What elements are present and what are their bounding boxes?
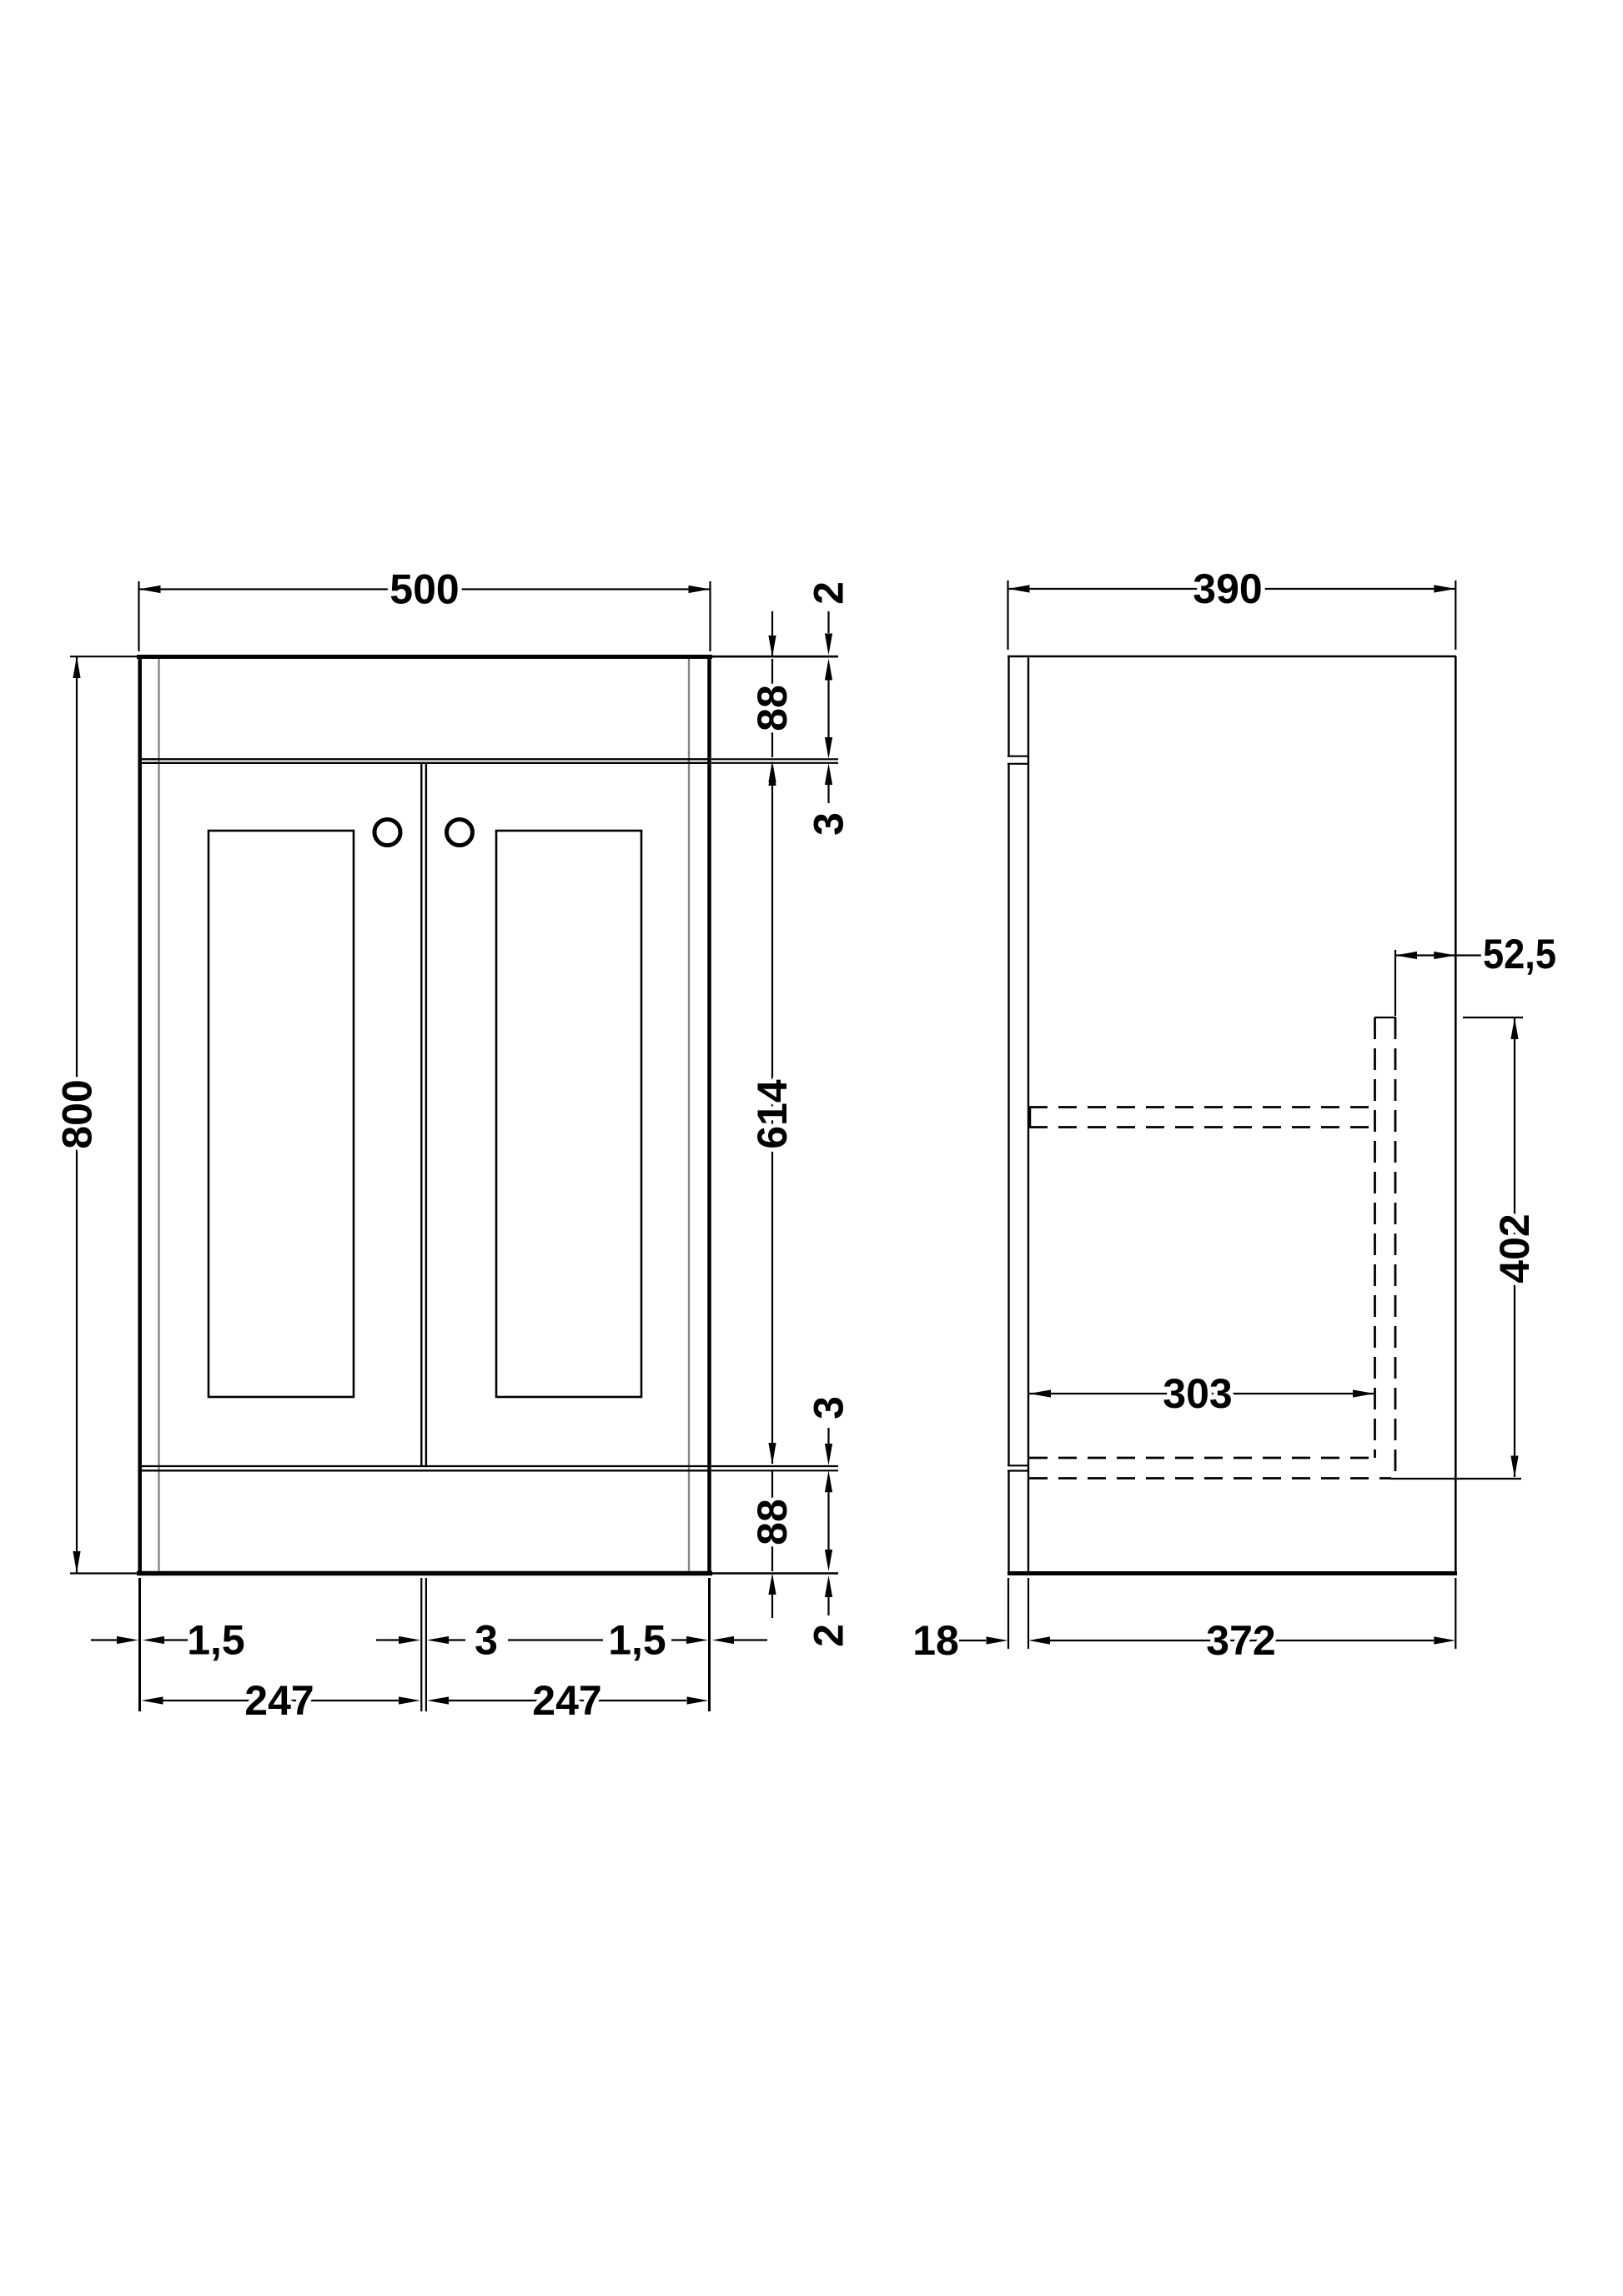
svg-text:52,5: 52,5 <box>1483 931 1556 977</box>
svg-text:614: 614 <box>749 1079 796 1149</box>
svg-text:88: 88 <box>749 685 796 731</box>
svg-text:3: 3 <box>475 1617 498 1664</box>
svg-text:500: 500 <box>389 566 459 613</box>
svg-text:303: 303 <box>1163 1370 1232 1417</box>
svg-text:372: 372 <box>1206 1617 1275 1664</box>
svg-text:402: 402 <box>1491 1213 1538 1283</box>
svg-text:1,5: 1,5 <box>187 1617 245 1664</box>
svg-text:2: 2 <box>806 1624 852 1647</box>
svg-text:3: 3 <box>806 812 852 836</box>
svg-text:247: 247 <box>244 1677 314 1724</box>
svg-text:88: 88 <box>749 1499 796 1545</box>
svg-text:18: 18 <box>912 1617 959 1664</box>
svg-text:1,5: 1,5 <box>608 1617 666 1664</box>
svg-text:247: 247 <box>532 1677 601 1724</box>
svg-text:3: 3 <box>806 1396 852 1419</box>
svg-text:800: 800 <box>54 1079 101 1148</box>
svg-text:390: 390 <box>1193 565 1262 612</box>
svg-text:2: 2 <box>806 581 852 605</box>
